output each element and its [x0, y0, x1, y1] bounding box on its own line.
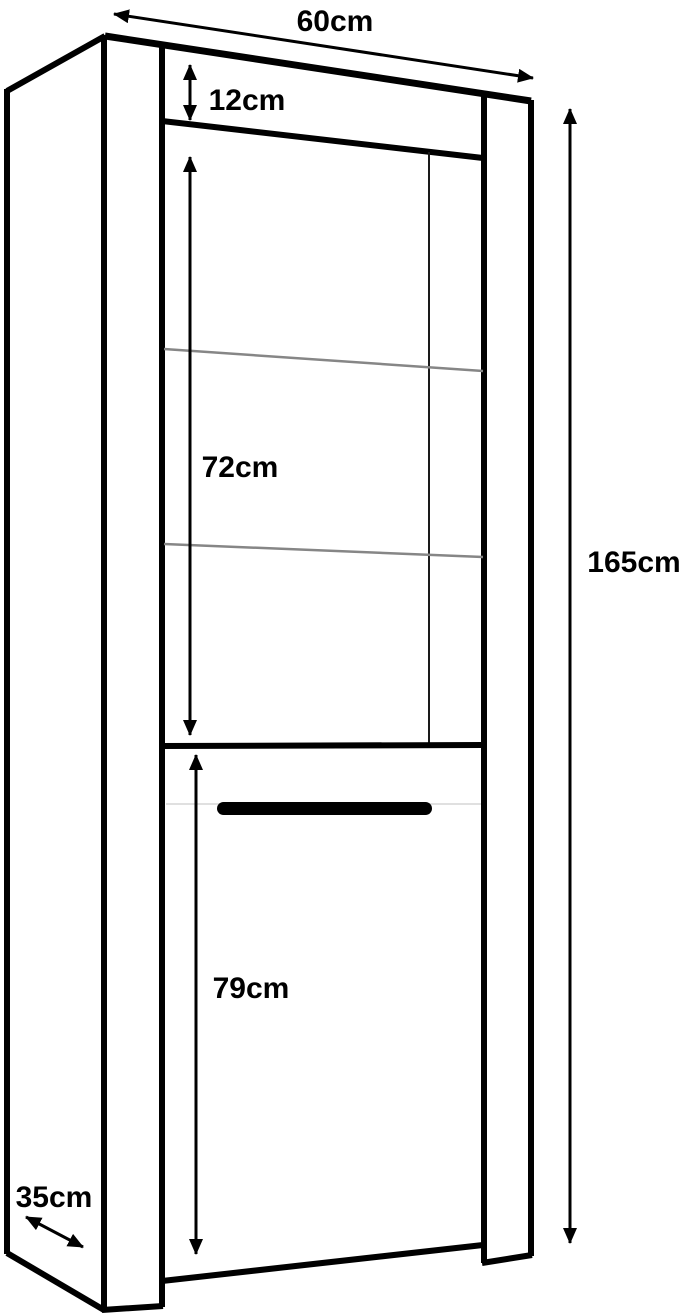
- cabinet-outline: [7, 35, 532, 1311]
- left-side-bottom-edge: [7, 1253, 104, 1310]
- right-pillar-bottom-edge: [482, 1255, 532, 1263]
- door-divider-edge: [162, 745, 482, 746]
- cabinet-drawing: 60cm 12cm 72cm 79cm 165cm 35cm: [0, 0, 683, 1315]
- glass-section-dimension-label: 72cm: [202, 451, 279, 484]
- width-dimension-label: 60cm: [297, 5, 374, 38]
- top-section-dimension-label: 12cm: [209, 84, 286, 117]
- glass-shelf-line-upper: [164, 349, 483, 371]
- total-height-dimension-label: 165cm: [587, 546, 680, 579]
- left-side-top-edge: [7, 36, 105, 91]
- dimension-labels: 60cm 12cm 72cm 79cm 165cm 35cm: [16, 5, 681, 1214]
- door-section-dimension-label: 79cm: [213, 972, 290, 1005]
- left-pillar-bottom-edge: [102, 1306, 163, 1310]
- door-handle: [217, 802, 432, 815]
- depth-dimension-arrow: [26, 1217, 83, 1247]
- furniture-dimension-diagram: 60cm 12cm 72cm 79cm 165cm 35cm: [0, 0, 683, 1315]
- dimension-arrows: [26, 14, 570, 1254]
- depth-dimension-label: 35cm: [16, 1181, 93, 1214]
- top-rail-bottom-edge: [162, 121, 483, 158]
- door-bottom-edge: [162, 1245, 483, 1281]
- glass-shelf-line-lower: [164, 544, 483, 557]
